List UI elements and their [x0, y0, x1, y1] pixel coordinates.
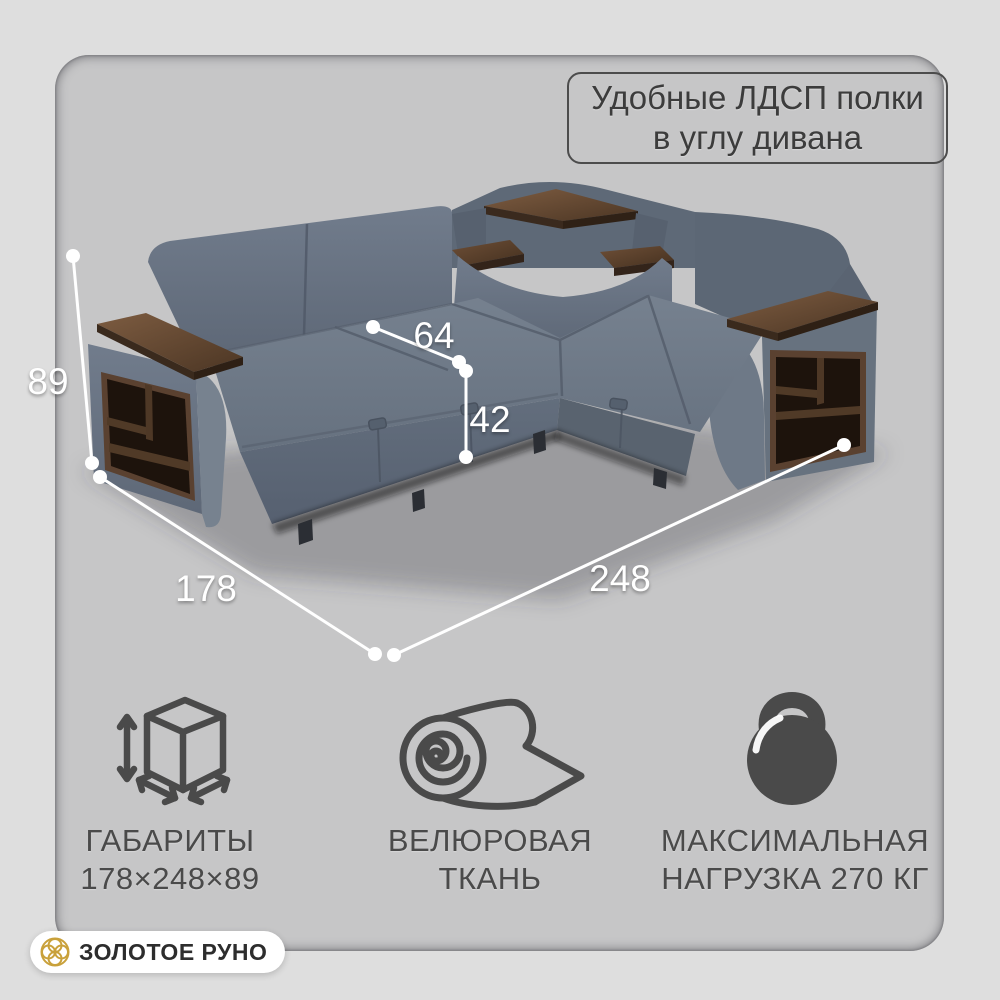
seat-depth-label: 64 [413, 315, 454, 356]
seat-height-label: 42 [469, 399, 510, 440]
brand-badge: ЗОЛОТОЕ РУНО [30, 931, 285, 973]
width-label: 248 [589, 558, 651, 599]
callout-line1: Удобные ЛДСП полки [591, 78, 924, 118]
cube-dimensions-icon [105, 686, 235, 808]
feature-dimensions-value: 178×248×89 [30, 860, 310, 898]
fabric-roll-icon [385, 680, 585, 820]
feature-fabric-title: ВЕЛЮРОВАЯ [330, 822, 650, 860]
feature-dimensions: ГАБАРИТЫ 178×248×89 [30, 822, 310, 898]
feature-max-load: МАКСИМАЛЬНАЯ НАГРУЗКА 270 КГ [630, 822, 960, 898]
callout-box: Удобные ЛДСП полки в углу дивана [567, 72, 948, 164]
product-card: 89 178 248 64 42 Удобные ЛДСП полки в уг… [0, 0, 1000, 1000]
side-depth-label: 178 [175, 568, 237, 609]
feature-dimensions-title: ГАБАРИТЫ [30, 822, 310, 860]
feature-fabric: ВЕЛЮРОВАЯ ТКАНЬ [330, 822, 650, 898]
kettlebell-icon [727, 676, 853, 806]
callout-line2: в углу дивана [653, 118, 862, 158]
height-label: 89 [27, 361, 68, 402]
feature-max-load-title: МАКСИМАЛЬНАЯ [630, 822, 960, 860]
feature-fabric-value: ТКАНЬ [330, 860, 650, 898]
brand-name: ЗОЛОТОЕ РУНО [79, 939, 267, 966]
feature-max-load-value: НАГРУЗКА 270 КГ [630, 860, 960, 898]
golden-fleece-logo-icon [39, 936, 71, 968]
